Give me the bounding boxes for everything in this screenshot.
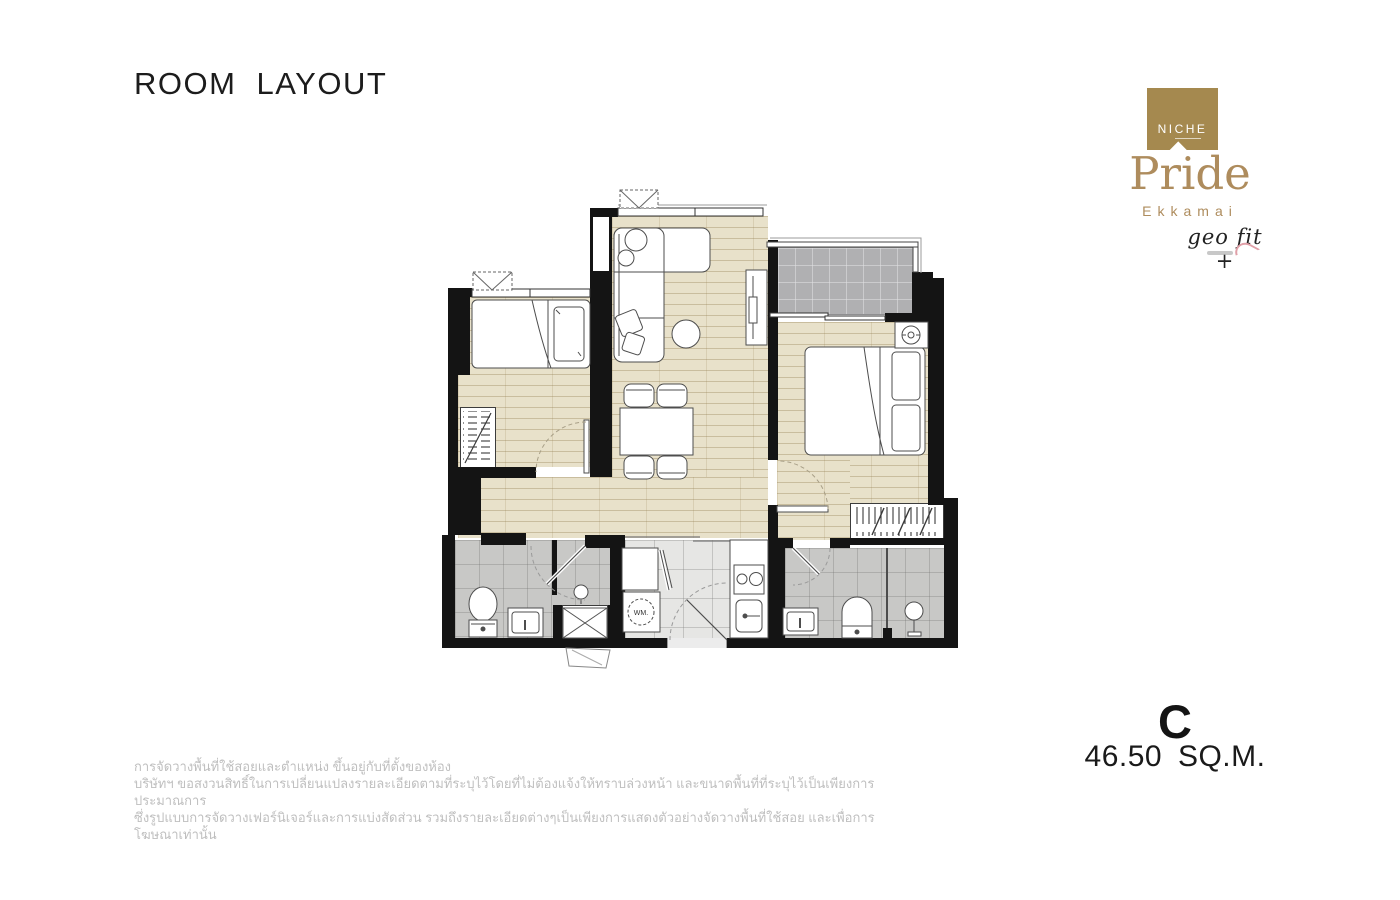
- ac-unit-bedroom-2: [473, 272, 512, 290]
- wall-segment: [768, 240, 778, 460]
- unit-area-label: 46.50 SQ.M.: [1060, 740, 1290, 774]
- disclaimer-line-2: บริษัทฯ ขอสงวนสิทธิ์ในการเปลี่ยนแปลงรายล…: [134, 775, 894, 809]
- wall-segment: [442, 638, 667, 648]
- wall-segment: [448, 290, 470, 375]
- wall-segment: [768, 540, 785, 640]
- ac-unit-living: [620, 190, 658, 208]
- brand-logo: NICHE Pride Ekkamai geo fit +: [1105, 85, 1275, 260]
- niche-badge-label: NICHE: [1147, 122, 1218, 136]
- wall-segment: [481, 533, 526, 545]
- floor-kitchen: [625, 540, 768, 640]
- wall-segment: [590, 280, 612, 477]
- wall-segment: [448, 467, 536, 478]
- page-title: ROOM LAYOUT: [134, 66, 387, 102]
- living-window: [618, 208, 763, 216]
- bedroom-2-window: [472, 289, 590, 297]
- wall-segment: [727, 638, 958, 648]
- wall-segment: [553, 605, 562, 640]
- wall-shaft-inset: [593, 217, 609, 271]
- floor-balcony: [777, 247, 915, 315]
- wall-segment: [768, 505, 778, 545]
- project-location: Ekkamai: [1105, 203, 1275, 219]
- wardrobe-bedroom-1: [850, 503, 944, 540]
- wall-segment: [608, 605, 617, 640]
- niche-badge: NICHE: [1147, 88, 1218, 150]
- floor-plan: WM.: [440, 180, 960, 670]
- floor-suite-hall: [777, 460, 850, 540]
- wall-segment: [944, 498, 958, 648]
- ac-ledge-recess: [562, 605, 608, 640]
- wall-segment: [830, 538, 850, 548]
- wardrobe-bedroom-2: [460, 407, 496, 468]
- room-layout-page: ROOM LAYOUT NICHE Pride Ekkamai geo fit …: [0, 0, 1400, 900]
- entrance-threshold: [667, 638, 727, 648]
- disclaimer-line-1: การจัดวางพื้นที่ใช้สอยและตำแหน่ง ขึ้นอยู…: [134, 758, 894, 775]
- wall-segment: [885, 313, 930, 322]
- floor-corridor: [458, 477, 768, 538]
- geofit-subtext: [1207, 251, 1233, 255]
- wall-segment: [850, 538, 944, 545]
- wall-segment: [442, 535, 455, 648]
- disclaimer-line-3: ซึ่งรูปแบบการจัดวางเฟอร์นิเจอร์และการแบ่…: [134, 809, 894, 843]
- niche-badge-subline: [1175, 138, 1201, 139]
- wall-segment: [448, 477, 481, 535]
- floor-bathroom-1: [785, 548, 946, 640]
- wall-segment: [448, 373, 458, 478]
- disclaimer-text: การจัดวางพื้นที่ใช้สอยและตำแหน่ง ขึ้นอยู…: [134, 758, 894, 843]
- project-name: Pride: [1105, 147, 1275, 200]
- wall-segment: [928, 278, 944, 505]
